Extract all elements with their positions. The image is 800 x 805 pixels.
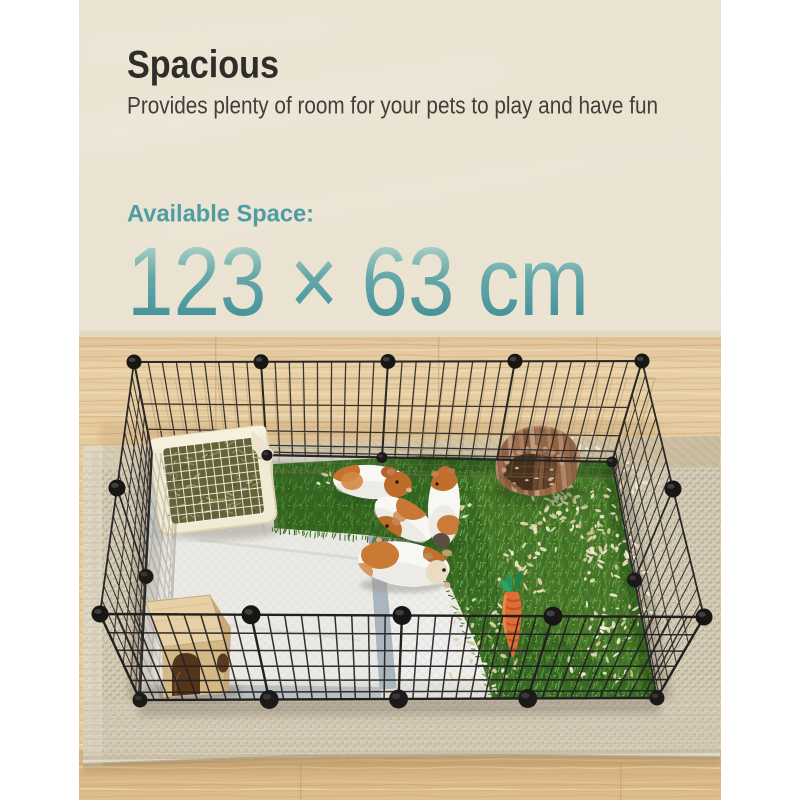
svg-text:Spacious: Spacious xyxy=(127,43,279,86)
svg-text:Available Space:: Available Space: xyxy=(127,200,314,227)
svg-text:123 × 63 cm: 123 × 63 cm xyxy=(127,227,589,336)
svg-text:Provides plenty of room for yo: Provides plenty of room for your pets to… xyxy=(127,93,658,119)
